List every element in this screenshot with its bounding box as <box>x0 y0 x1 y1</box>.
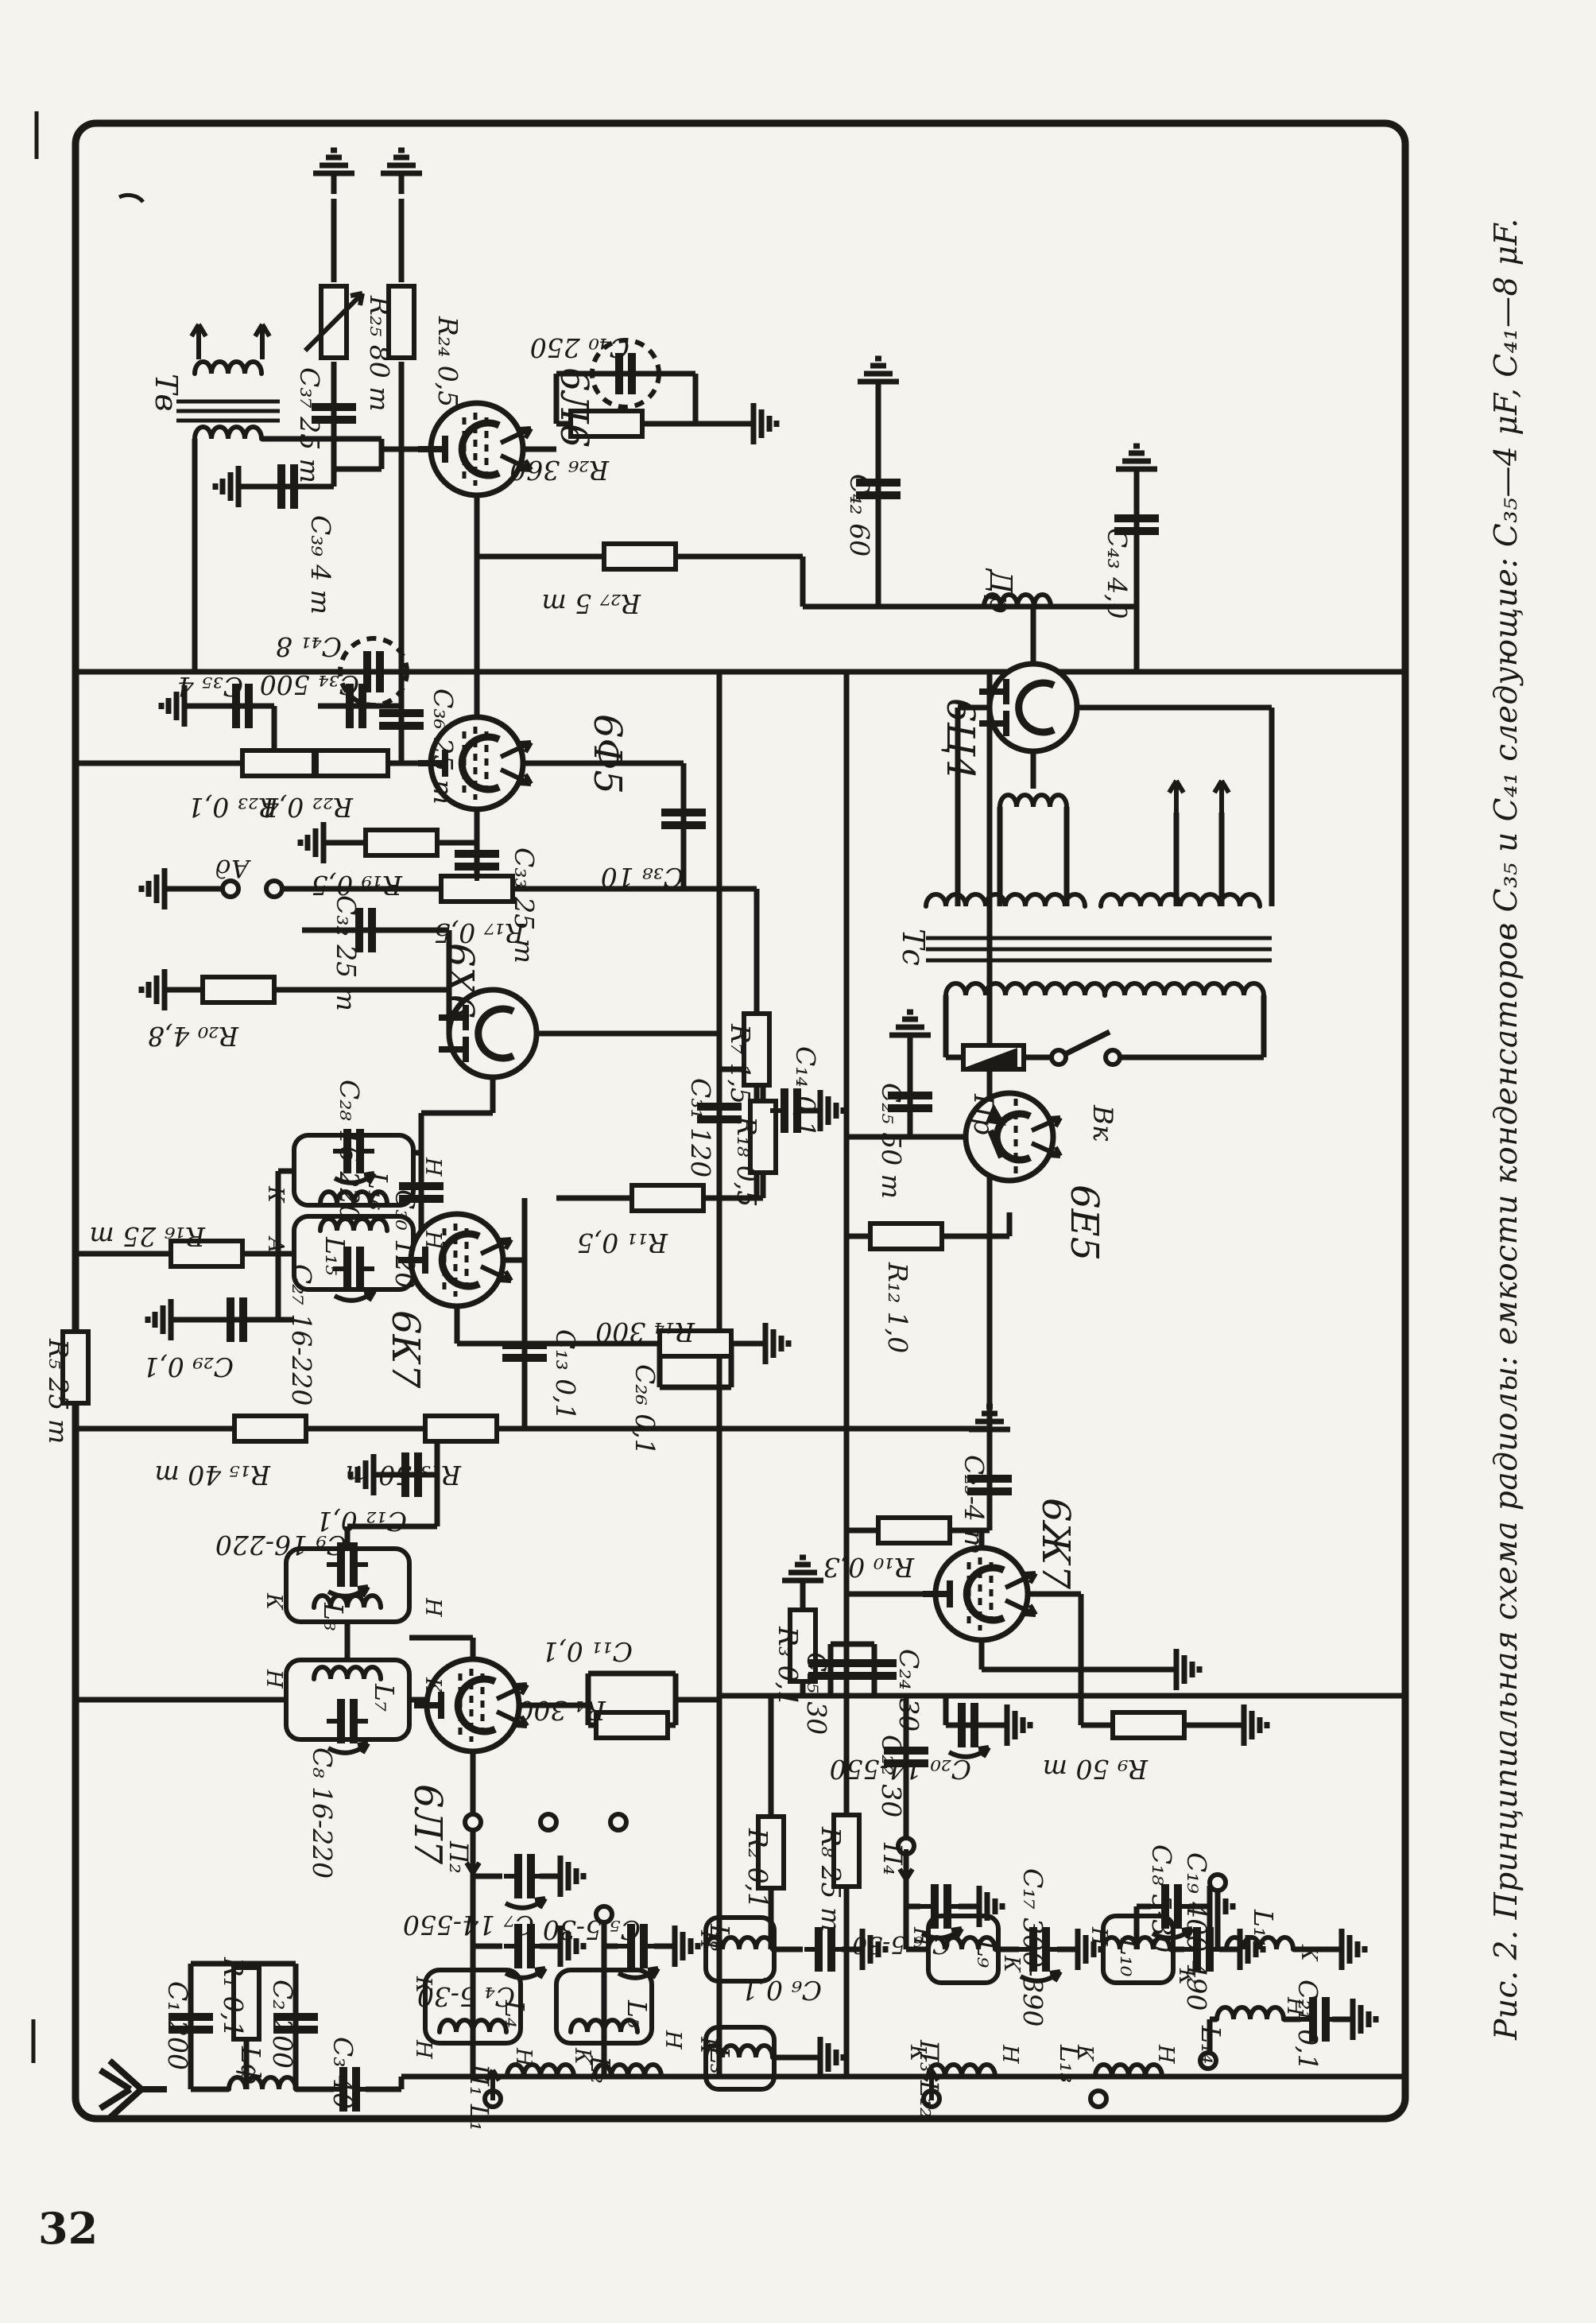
label-coil-l16: L₁₆ <box>362 1171 393 1210</box>
terminal-letter: Н <box>420 1597 445 1617</box>
component-label: R₈ 25 т <box>815 1826 846 1932</box>
component-label: R₂₆ 360 <box>509 455 610 486</box>
component-label: C₃₈ 10 <box>601 862 684 893</box>
component-label: R₁₆ 25 т <box>89 1221 206 1252</box>
resistor-r9 <box>1113 1712 1184 1738</box>
component-label: R₁₄ 300 <box>595 1317 695 1348</box>
terminal-letter: Н <box>695 1929 720 1949</box>
term-symbol <box>465 1814 481 1830</box>
component-label: C₂₉ 0,1 <box>142 1352 234 1383</box>
component-label: П₄ <box>877 1842 908 1875</box>
component-label: C₁₈ 5-30 <box>1146 1844 1177 1953</box>
component-label: R₂ 0,1 <box>742 1828 773 1909</box>
component-label: C₄₂ 60 <box>844 474 875 557</box>
component-label: C₁₆ 5-30 <box>852 1930 951 1958</box>
resistor-r11 <box>632 1185 703 1211</box>
component-label: R₁₁ 0,5 <box>577 1227 668 1258</box>
resistor-r10 <box>878 1518 950 1543</box>
label-tube-6l6: 6Л6 <box>552 367 596 448</box>
label-tube-6zh7: 6Ж7 <box>1033 1498 1078 1589</box>
component-label: C₁₇ 300-390 <box>1017 1868 1048 2026</box>
component-label: C₁ 200 <box>162 1981 193 2070</box>
schematic-figure: ТвC₃₇ 25 тC₃₉ 4 тR₂₅ 80 тR₂₄ 0,56Л6C₄₀ 2… <box>0 0 1596 2323</box>
component-label: Вк <box>1087 1104 1118 1142</box>
label-tube-6k7: 6К7 <box>383 1310 428 1389</box>
component-label: C₆ 0,1 <box>742 1975 822 2006</box>
component-label: C₃₅ 4 <box>177 671 243 702</box>
terminal-letter: Н <box>261 1669 286 1689</box>
terminal-letter: К <box>905 2044 930 2062</box>
terminal-letter: К <box>1296 1944 1321 1962</box>
terminal-letter: А <box>263 1235 288 1253</box>
resistor-r23 <box>242 750 314 776</box>
label-coil-l5: L₅ <box>622 1999 653 2028</box>
label-transformer-tv: Тв <box>149 374 184 411</box>
label-coil-l15: L₁₅ <box>320 1236 351 1275</box>
component-label: R₅ 25 т <box>43 1338 74 1444</box>
component-label: П₂ <box>444 1840 474 1874</box>
terminal-letter: К <box>695 2036 720 2054</box>
page-number: 32 <box>38 2203 98 2254</box>
label-tube-6h6: 6Х6 <box>437 943 482 1018</box>
component-label: R₁₈ 0,5 <box>731 1115 762 1207</box>
terminal-letter: Н <box>420 1157 445 1177</box>
component-label: C₂ 200 <box>267 1980 298 2069</box>
term-symbol <box>1090 2091 1106 2107</box>
resistor-r27 <box>604 544 676 569</box>
terminal-letter: Н <box>1153 2044 1178 2064</box>
component-label: R₄ 300 <box>517 1695 606 1726</box>
label-coil-l10: L₁₀ <box>1114 1937 1145 1976</box>
component-label: R₂₀ 4,8 <box>148 1021 239 1052</box>
component-label: C₉ 16-220 <box>215 1530 347 1561</box>
component-label: C₃₀ 120 <box>389 1189 420 1289</box>
component-label: R₂₅ 80 т <box>364 295 395 412</box>
component-label: C₁₄ 0,1 <box>790 1046 821 1138</box>
terminal-letter: Н <box>1282 1996 1307 2016</box>
component-label: C₁₅ 30 <box>801 1652 832 1735</box>
label-coil-l7: L₇ <box>369 1683 400 1712</box>
component-label: R₂₂ 0,4 <box>262 792 354 823</box>
component-label: C₁₉ 400-490 <box>1181 1852 1212 2011</box>
resistor-r13 <box>425 1416 497 1441</box>
terminal-letter: К <box>420 1677 445 1695</box>
component-label: R₂₄ 0,5 <box>432 316 463 407</box>
label-choke: Др <box>983 568 1018 613</box>
component-label: R₉ 50 т <box>1043 1754 1149 1785</box>
component-label: R₁₃ 50 т <box>345 1460 462 1491</box>
terminal-letter: Н <box>411 2039 436 2059</box>
terminal-letter: Н <box>1087 1926 1111 1946</box>
label-coil-l9: L₉ <box>971 1939 1002 1968</box>
component-label: C₃₇ 25 т <box>294 367 325 483</box>
label-coil-l11: L₁₁ <box>1248 1909 1279 1948</box>
component-label: R₁₀ 0,3 <box>823 1552 915 1583</box>
fuse-pr <box>963 1045 1024 1069</box>
component-label: C₈ 16-220 <box>307 1747 338 1879</box>
label-tube-6f5: 6Ф5 <box>585 714 629 794</box>
component-label: Пр <box>967 1093 999 1134</box>
term-symbol <box>540 1814 556 1830</box>
terminal-letter: К <box>1174 1968 1199 1986</box>
label-tube-6c4: 6Ц4 <box>938 698 982 780</box>
component-label: C₅ 5-30 <box>543 1914 641 1945</box>
scanned-schematic-page: ТвC₃₇ 25 тC₃₉ 4 тR₂₅ 80 тR₂₄ 0,56Л6C₄₀ 2… <box>0 0 1596 2323</box>
term-symbol <box>266 881 282 897</box>
component-label: C₁₁ 0,1 <box>541 1636 633 1667</box>
resistor-r20 <box>203 977 274 1002</box>
component-label: R₁ 0,1 <box>218 1957 249 2038</box>
resistor-r4 <box>596 1712 668 1738</box>
component-label: C₃₄ 500 <box>260 669 359 700</box>
label-coil-l14: L₁₄ <box>1195 2025 1226 2064</box>
component-label: R₃ 0,1 <box>773 1626 804 1707</box>
component-label: C₃₂ 25 т <box>331 895 362 1011</box>
figure-caption: Рис. 2. Принципиальная схема радиолы: ем… <box>1489 218 1524 2041</box>
component-label: R₇ 1,5 <box>725 1023 756 1104</box>
component-label: C₁₃ 0,1 <box>550 1329 581 1421</box>
component-label: R₁₂ 1,0 <box>882 1262 913 1353</box>
term-symbol <box>223 881 238 897</box>
terminal-letter: Н <box>660 2030 685 2050</box>
component-label: C₃₁ 120 <box>685 1078 716 1177</box>
label-coil-lf: Lф <box>235 2046 266 2084</box>
resistor-r22 <box>316 750 388 776</box>
component-label: C₄₀ 250 <box>530 332 629 363</box>
component-label: C₂₁ 0,1 <box>1292 1980 1323 2071</box>
component-label: C₂₅ 50 т <box>876 1083 907 1199</box>
terminal-letter: К <box>263 1185 288 1204</box>
terminal-letter: Н <box>908 1926 933 1946</box>
component-label: C₂₇ 16-220 <box>286 1264 317 1406</box>
label-coil-l8: L₈ <box>318 1602 349 1631</box>
component-label: C₂₈ 16-220 <box>334 1080 365 1221</box>
component-label: П₁ L₁ <box>464 2063 494 2131</box>
component-label: C₇ 14-550 <box>403 1910 534 1941</box>
component-label: C₂₃-4 т <box>959 1455 990 1555</box>
resistor-r12 <box>870 1224 942 1249</box>
component-label: C₂₀ 14-550 <box>830 1754 971 1785</box>
terminal-letter: К <box>570 2047 595 2065</box>
component-label: C₂₆ 0,1 <box>629 1364 660 1456</box>
component-label: C₃₉ 4 т <box>305 515 336 615</box>
component-label: C₃₆ 25 т <box>428 688 459 805</box>
component-label: C₄₃ 4,0 <box>1102 528 1133 619</box>
component-label: C₂₄ 30 <box>893 1649 924 1732</box>
component-label: R₁₅ 40 т <box>154 1460 271 1491</box>
label-transformer-ts: Тс <box>896 929 931 966</box>
terminal-letter: К <box>411 1976 436 1994</box>
component-label: Ад <box>215 854 251 882</box>
label-tube-6l7: 6Л7 <box>405 1784 450 1865</box>
terminal-letter: К <box>999 1955 1024 1973</box>
term-symbol <box>610 1814 626 1830</box>
terminal-letter: Н <box>511 2047 536 2067</box>
resistor-r19 <box>366 830 437 855</box>
terminal-letter: Н <box>997 2044 1022 2064</box>
terminal-letter: К <box>261 1592 286 1611</box>
label-tube-6e5: 6Е5 <box>1062 1185 1106 1261</box>
terminal-letter: К <box>1072 2044 1097 2062</box>
label-coil-l4: L₄ <box>499 1999 530 2028</box>
terminal-letter: Н <box>420 1230 445 1250</box>
component-label: C₃ 40 <box>327 2037 358 2109</box>
component-label: R₂₇ 5 т <box>541 588 641 619</box>
resistor-r15 <box>234 1416 306 1441</box>
component-label: C₄₁ 8 <box>276 631 342 662</box>
